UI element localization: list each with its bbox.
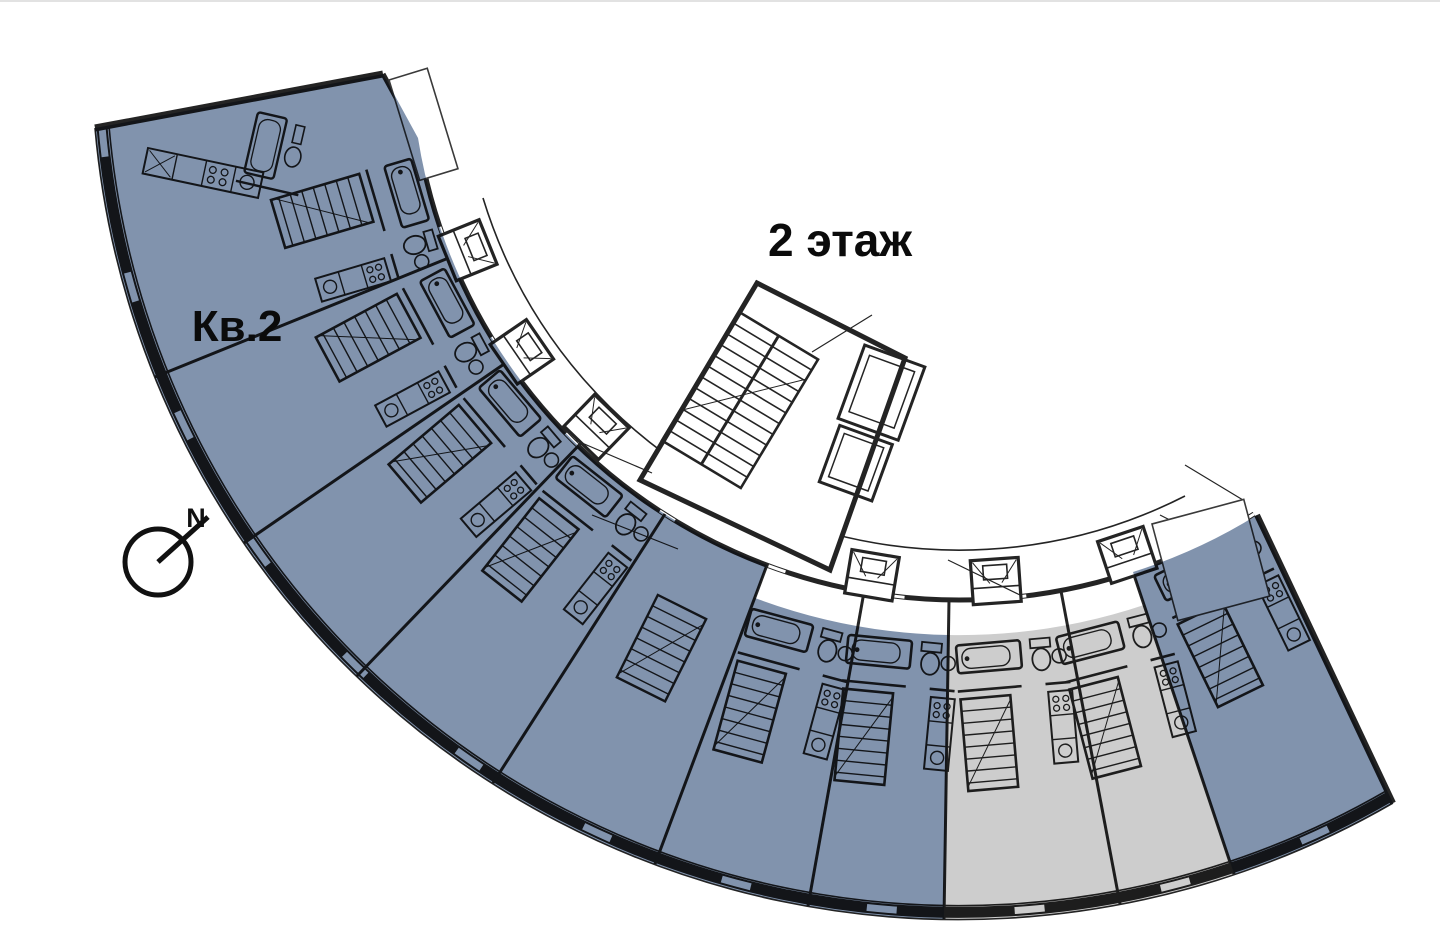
floor-plan-svg: 2 этаж Кв.2 N [0,0,1440,952]
compass-north-letter: N [186,503,206,533]
compass-icon: N [125,503,208,595]
floor-title: 2 этаж [768,214,912,266]
floor-plan-screenshot: 2 этаж Кв.2 N [0,0,1440,952]
apartment-label: Кв.2 [192,302,283,351]
